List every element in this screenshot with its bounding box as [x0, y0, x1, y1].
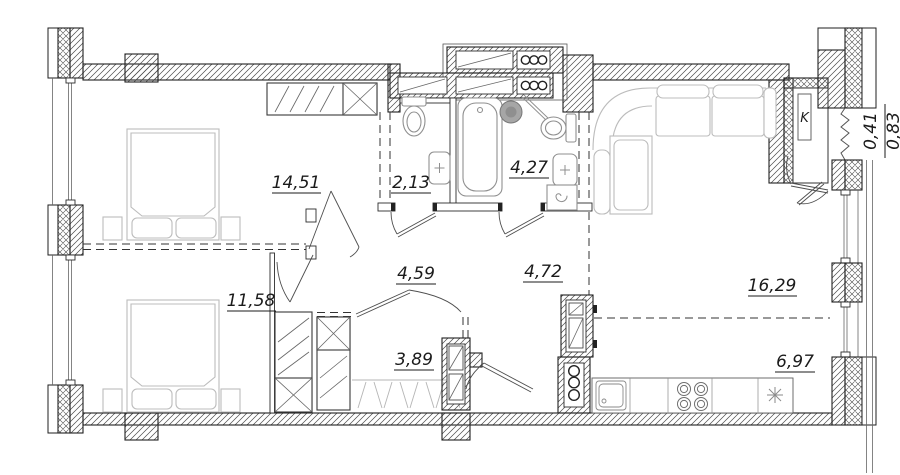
area-label-wc: 2,13	[392, 173, 430, 193]
door-frame	[306, 246, 316, 259]
area-label-bedroom2: 11,58	[227, 291, 276, 311]
nightstand	[103, 389, 122, 412]
nightstand	[103, 217, 122, 240]
duct-icon	[456, 77, 513, 94]
fridge-icon	[767, 387, 783, 403]
area-label-bedroom1: 14,51	[272, 173, 321, 193]
wardrobe-closet-right	[317, 317, 350, 410]
wall-pier	[125, 413, 158, 440]
balcony-area-full: 0,83	[884, 112, 900, 150]
wall-column	[48, 28, 83, 78]
pillow	[132, 218, 172, 238]
pillow	[176, 218, 216, 238]
kitchen-counter	[592, 378, 793, 413]
pillow	[176, 389, 216, 409]
riser-pipes-icon	[517, 77, 550, 94]
wall-pier	[125, 54, 158, 82]
bathtub	[458, 98, 502, 196]
wardrobe-bedroom1	[267, 83, 377, 115]
wall-pier	[563, 55, 593, 112]
sofa-pillow	[657, 85, 709, 98]
area-label-bathroom: 4,27	[510, 158, 548, 178]
sofa-armrest	[764, 88, 776, 138]
sink-wc	[429, 152, 450, 184]
k-closet-label: K	[800, 111, 810, 126]
nightstand	[221, 217, 240, 240]
water-heater	[547, 185, 577, 210]
sofa-armrest	[594, 150, 610, 214]
floor-plan: K	[0, 0, 900, 475]
area-label-hall2: 4,72	[524, 262, 562, 282]
balcony-area-fraction: 0,41 0,83	[861, 104, 900, 158]
balcony-area-reduced: 0,41	[861, 112, 881, 150]
wall-column	[48, 205, 83, 255]
pillow	[132, 389, 172, 409]
area-label-living: 16,29	[748, 276, 797, 296]
door-frame	[306, 209, 316, 222]
duct-icon	[456, 51, 513, 69]
wall-pier	[442, 413, 470, 440]
riser-pipes-icon	[517, 51, 550, 69]
wardrobe-closet-left	[275, 312, 312, 412]
sink-bathroom	[553, 154, 577, 186]
riser-shaft-kitchen	[558, 357, 590, 413]
toilet-wc	[402, 97, 426, 136]
wall-wc-bath	[450, 98, 456, 204]
area-label-closet: 3,89	[395, 350, 433, 370]
sofa-pillow	[713, 85, 763, 98]
wall-bedroom2-closet	[270, 253, 275, 413]
wall-column	[48, 385, 83, 433]
nightstand	[221, 389, 240, 412]
area-label-hall1: 4,59	[397, 264, 435, 284]
vent-shaft-kitchen	[561, 295, 597, 357]
area-label-kitchen: 6,97	[776, 352, 814, 372]
duct-icon	[398, 77, 447, 94]
